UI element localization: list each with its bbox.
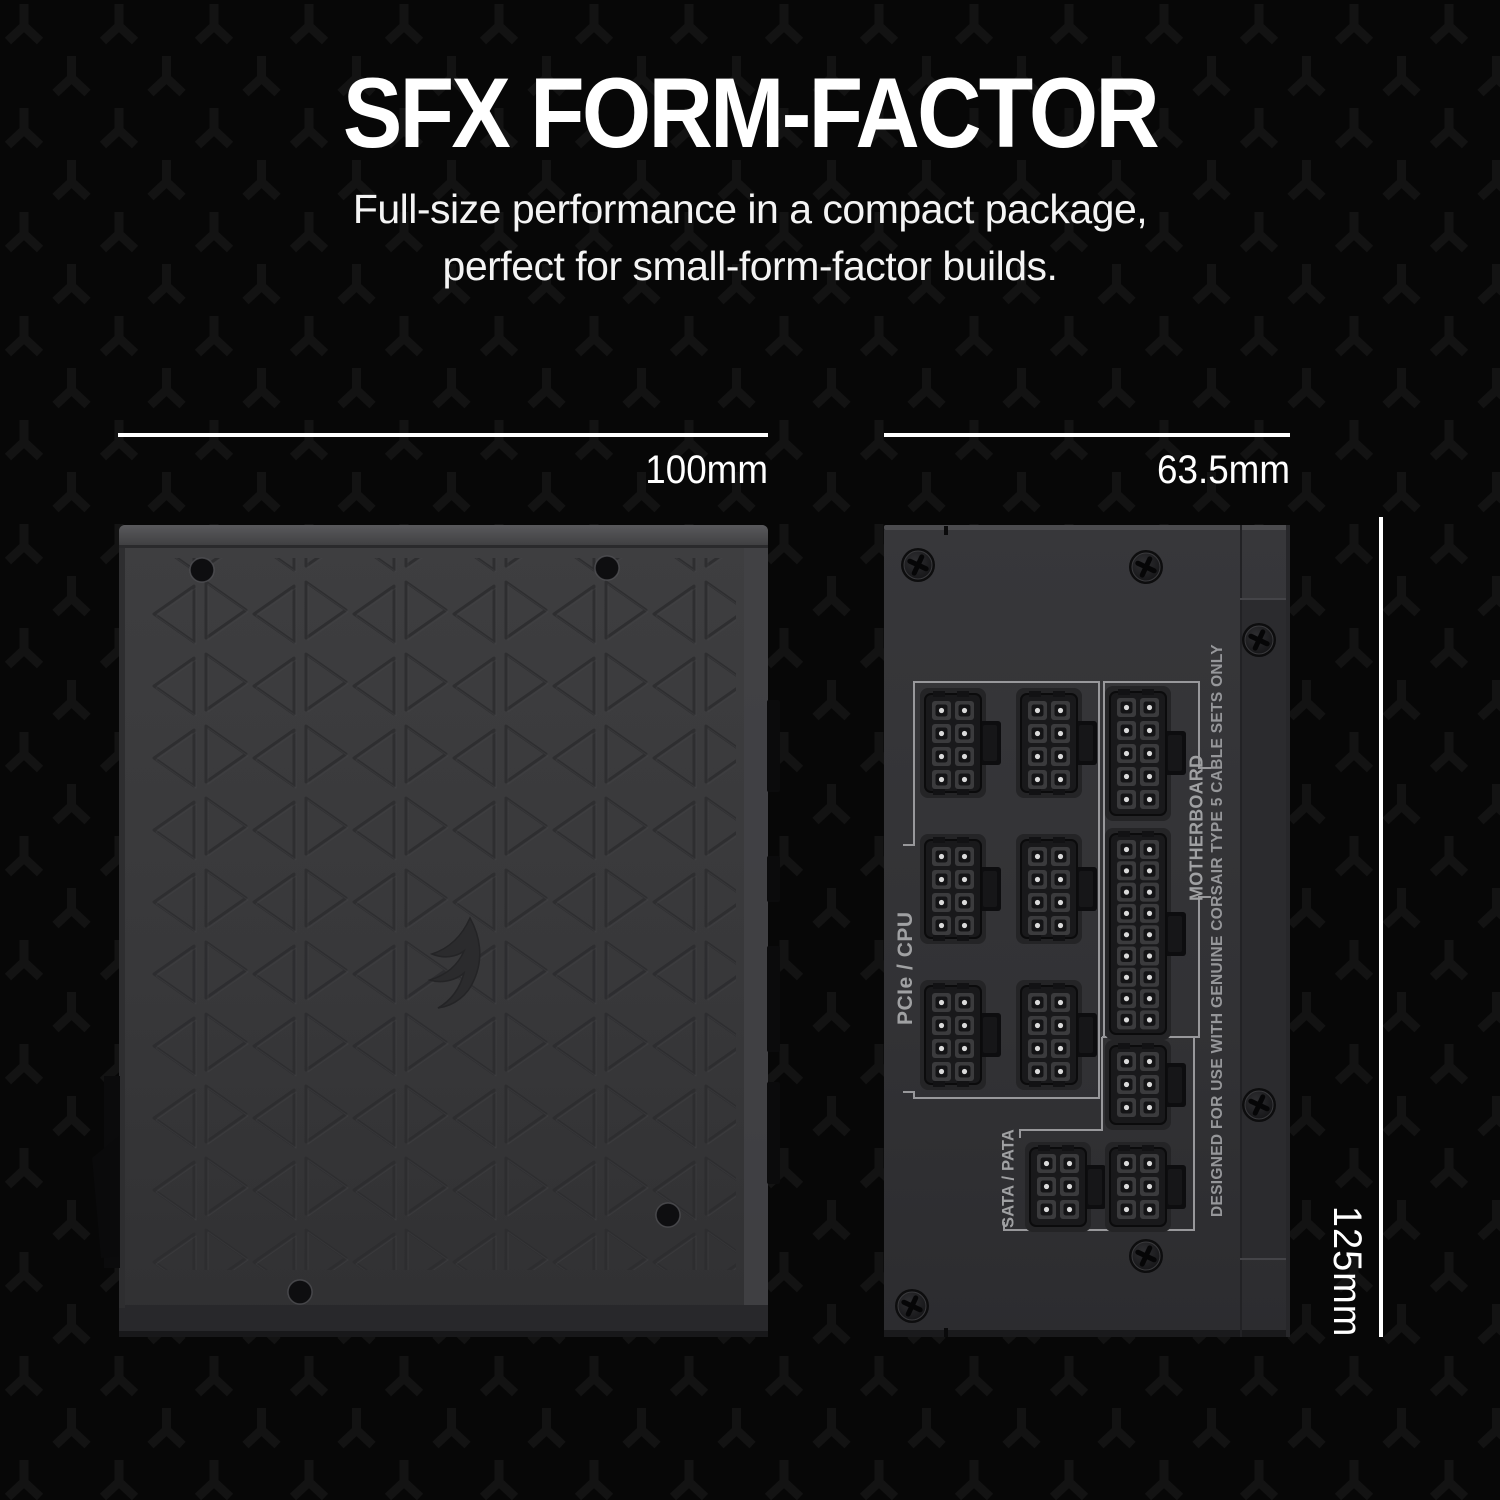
width-dimension-line: [118, 433, 768, 437]
page-title: SFX FORM-FACTOR: [75, 56, 1425, 170]
depth-dimension-label: 63.5mm: [1014, 448, 1290, 493]
vent-triangle-pattern: [150, 558, 736, 1270]
depth-dimension-line: [884, 433, 1290, 437]
width-dimension-label: 100mm: [492, 448, 768, 493]
label-sata-pata: SATA / PATA: [995, 1123, 1023, 1233]
label-pcie-cpu: PCIe / CPU: [891, 838, 921, 1098]
page-subtitle: Full-size performance in a compact packa…: [0, 181, 1500, 295]
height-dimension-label: 125mm: [1324, 1188, 1369, 1337]
panel-side-strip: [1240, 598, 1290, 1260]
label-cable-warning: DESIGNED FOR USE WITH GENUINE CORSAIR TY…: [1204, 681, 1232, 1181]
height-dimension-line: [1379, 517, 1383, 1337]
subtitle-line-1: Full-size performance in a compact packa…: [0, 181, 1500, 238]
subtitle-line-2: perfect for small-form-factor builds.: [0, 238, 1500, 295]
psu-top-view: [92, 525, 780, 1337]
product-infographic: SFX FORM-FACTOR Full-size performance in…: [0, 0, 1500, 1500]
